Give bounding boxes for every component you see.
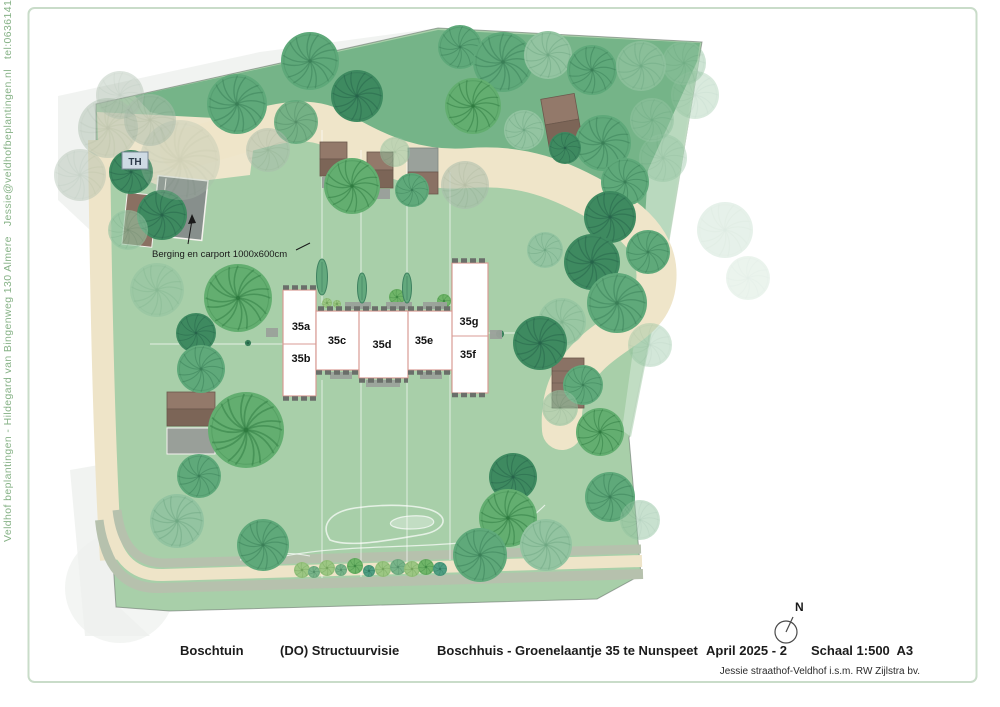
shed-left-mid xyxy=(167,392,215,454)
tree xyxy=(697,202,753,258)
tree xyxy=(549,132,581,164)
sidebar-contact-text: Veldhof beplantingen - Hildegard van Bin… xyxy=(2,112,14,542)
north-label: N xyxy=(795,600,804,614)
tree xyxy=(177,345,225,393)
th-label: TH xyxy=(128,157,141,168)
tree xyxy=(294,562,310,578)
house-unit-label-35a: 35a xyxy=(292,321,311,333)
tree xyxy=(108,210,148,250)
tree xyxy=(433,562,447,576)
tree xyxy=(504,110,544,150)
tree xyxy=(628,323,672,367)
tree xyxy=(630,98,674,142)
tree xyxy=(207,74,267,134)
tree xyxy=(404,561,420,577)
tree xyxy=(319,560,335,576)
conifer-tree xyxy=(358,273,367,303)
tree xyxy=(331,70,383,122)
site-plan-drawing: 35a35b35c35d35e35g35f TH Berging en carp… xyxy=(0,0,1000,707)
tree xyxy=(375,561,391,577)
project-name: Boschtuin xyxy=(180,643,244,658)
tree xyxy=(380,137,410,167)
tree xyxy=(395,173,429,207)
house-unit-label-35g: 35g xyxy=(460,316,479,328)
phase-label: (DO) Structuurvisie xyxy=(280,643,399,658)
tree xyxy=(140,120,220,200)
tree xyxy=(616,41,666,91)
tree xyxy=(620,500,660,540)
tree xyxy=(527,232,563,268)
tree xyxy=(347,558,363,574)
conifer-tree xyxy=(403,273,412,303)
tree xyxy=(542,390,578,426)
tree xyxy=(204,264,272,332)
title-block: Boschtuin (DO) Structuurvisie Boschhuis … xyxy=(0,643,1000,663)
tree xyxy=(662,41,706,85)
tree xyxy=(513,316,567,370)
tree xyxy=(418,559,434,575)
drawing-date: April 2025 - 2 xyxy=(706,643,787,658)
left-path-strip xyxy=(99,140,111,560)
credit-line: Jessie straathof-Veldhof i.s.m. RW Zijls… xyxy=(0,666,920,677)
tree xyxy=(54,149,106,201)
th-marker: TH xyxy=(122,152,148,169)
tree xyxy=(520,519,572,571)
tree xyxy=(567,45,617,95)
tree xyxy=(324,158,380,214)
north-compass: N xyxy=(775,600,804,643)
house-unit-label-35c: 35c xyxy=(328,335,346,347)
tree xyxy=(150,494,204,548)
house-unit-label-35e: 35e xyxy=(415,335,433,347)
tree xyxy=(237,519,289,571)
tree xyxy=(576,408,624,456)
berging-label: Berging en carport 1000x600cm xyxy=(152,249,287,260)
house-unit-label-35f: 35f xyxy=(460,349,476,361)
tree xyxy=(587,273,647,333)
tree xyxy=(441,161,489,209)
house-unit-label-35b: 35b xyxy=(292,353,311,365)
tree xyxy=(246,128,290,172)
scale-label: Schaal 1:500 A3 xyxy=(811,643,913,658)
tree xyxy=(390,559,406,575)
drawing-title: Boschhuis - Groenelaantje 35 te Nunspeet xyxy=(437,643,698,658)
tree xyxy=(308,566,320,578)
tree xyxy=(726,256,770,300)
tree xyxy=(453,528,507,582)
tree xyxy=(130,263,184,317)
tree xyxy=(445,78,501,134)
tree xyxy=(335,564,347,576)
tree xyxy=(281,32,339,90)
tree xyxy=(626,230,670,274)
house-unit-label-35d: 35d xyxy=(373,339,392,351)
tree xyxy=(245,340,251,346)
tree xyxy=(208,392,284,468)
tree xyxy=(363,565,375,577)
tree xyxy=(524,31,572,79)
tree xyxy=(177,454,221,498)
conifer-tree xyxy=(317,259,328,295)
